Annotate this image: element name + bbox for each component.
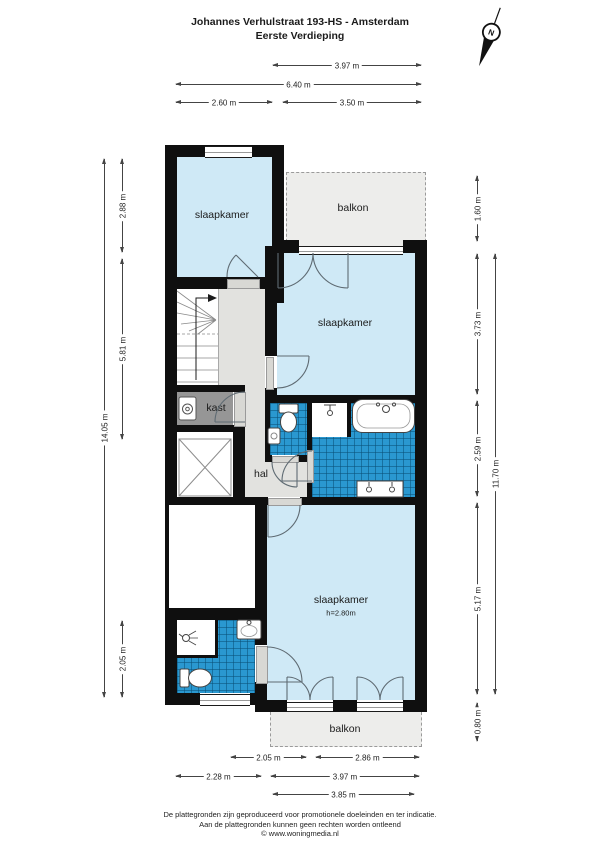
wall-segment bbox=[165, 497, 268, 505]
toilet-room bbox=[270, 403, 307, 455]
page-title: Johannes Verhulstraat 193-HS - Amsterdam bbox=[0, 16, 600, 28]
dimension-right-1: 1.60 m bbox=[473, 175, 482, 242]
dimension-left-1: 2.88 m bbox=[118, 158, 127, 253]
dimension-right-6: 11.70 m bbox=[491, 253, 500, 695]
dimension-top-1: 3.97 m bbox=[272, 61, 422, 70]
footer-line-3: © www.woningmedia.nl bbox=[0, 829, 600, 839]
room-label: hal bbox=[254, 468, 268, 480]
wall-segment bbox=[165, 608, 177, 705]
hall-area bbox=[218, 289, 265, 385]
wall-segment bbox=[165, 289, 177, 505]
wall-segment bbox=[250, 693, 267, 705]
shower-tray bbox=[312, 403, 347, 437]
wall-segment bbox=[165, 145, 177, 289]
dimension-bottom-4: 3.97 m bbox=[270, 772, 420, 781]
wall-segment bbox=[265, 455, 272, 462]
window-icon bbox=[205, 146, 252, 158]
room-ceiling-height-label: h=2.80m bbox=[326, 609, 355, 618]
dimension-right-3: 2.59 m bbox=[473, 400, 482, 497]
dimension-top-3: 2.60 m bbox=[175, 98, 273, 107]
wall-segment bbox=[165, 505, 169, 608]
room-label: slaapkamer bbox=[314, 594, 368, 606]
wall-segment bbox=[403, 700, 427, 712]
wall-segment bbox=[265, 403, 270, 455]
wall-segment bbox=[165, 385, 245, 392]
dimension-top-2: 6.40 m bbox=[175, 80, 422, 89]
door-sill bbox=[256, 646, 268, 684]
void-area bbox=[169, 505, 255, 608]
wall-segment bbox=[284, 240, 299, 253]
window-icon bbox=[200, 694, 250, 706]
footer-disclaimer: De plattegronden zijn geproduceerd voor … bbox=[0, 810, 600, 839]
room-label: balkon bbox=[330, 723, 361, 735]
wall-segment bbox=[177, 655, 218, 658]
footer-line-2: Aan de plattegronden kunnen geen rechten… bbox=[0, 820, 600, 830]
wall-segment bbox=[333, 700, 357, 712]
window-icon bbox=[299, 246, 313, 255]
door-sill bbox=[227, 279, 260, 289]
dimension-right-5: 0.80 m bbox=[473, 702, 482, 742]
stairs-area bbox=[177, 289, 218, 385]
dimension-bottom-2: 2.86 m bbox=[315, 753, 420, 762]
elevator-shaft bbox=[179, 439, 231, 496]
door-threshold bbox=[287, 702, 333, 712]
floorplan-page: Johannes Verhulstraat 193-HS - Amsterdam… bbox=[0, 0, 600, 849]
wall-segment bbox=[165, 608, 267, 620]
page-subtitle: Eerste Verdieping bbox=[0, 30, 600, 42]
dimension-left-4: 14.05 m bbox=[100, 158, 109, 698]
room-label: balkon bbox=[338, 202, 369, 214]
dimension-left-2: 5.81 m bbox=[118, 258, 127, 440]
wall-segment bbox=[165, 693, 200, 705]
room-label: slaapkamer bbox=[318, 317, 372, 329]
wall-segment bbox=[347, 395, 351, 437]
door-threshold bbox=[357, 702, 403, 712]
hall-area bbox=[245, 403, 265, 497]
room-label: slaapkamer bbox=[195, 209, 249, 221]
dimension-left-3: 2.05 m bbox=[118, 620, 127, 698]
wall-segment bbox=[300, 497, 427, 505]
wall-segment bbox=[307, 481, 312, 497]
dimension-bottom-3: 2.28 m bbox=[175, 772, 262, 781]
wall-segment bbox=[415, 240, 427, 712]
door-sill bbox=[307, 450, 314, 483]
door-sill bbox=[268, 498, 302, 506]
wall-segment bbox=[233, 432, 245, 497]
wall-segment bbox=[307, 395, 312, 450]
door-sill bbox=[234, 392, 246, 427]
door-threshold bbox=[313, 246, 383, 255]
door-sill bbox=[272, 456, 299, 463]
door-sill bbox=[266, 357, 274, 390]
wall-segment bbox=[215, 620, 218, 658]
dimension-bottom-1: 2.05 m bbox=[230, 753, 307, 762]
hall-area bbox=[245, 385, 265, 403]
dimension-right-2: 3.73 m bbox=[473, 253, 482, 395]
window-icon bbox=[383, 246, 403, 255]
wall-segment bbox=[265, 246, 277, 356]
shower-tray-bottom bbox=[177, 620, 215, 655]
wall-segment bbox=[255, 497, 267, 645]
dimension-bottom-5: 3.85 m bbox=[272, 790, 415, 799]
footer-line-1: De plattegronden zijn geproduceerd voor … bbox=[0, 810, 600, 820]
dimension-right-4: 5.17 m bbox=[473, 502, 482, 695]
wall-segment bbox=[165, 425, 245, 432]
room-label: kast bbox=[206, 402, 225, 414]
dimension-top-4: 3.50 m bbox=[282, 98, 422, 107]
hall-area bbox=[265, 462, 312, 497]
wall-segment bbox=[265, 395, 427, 403]
